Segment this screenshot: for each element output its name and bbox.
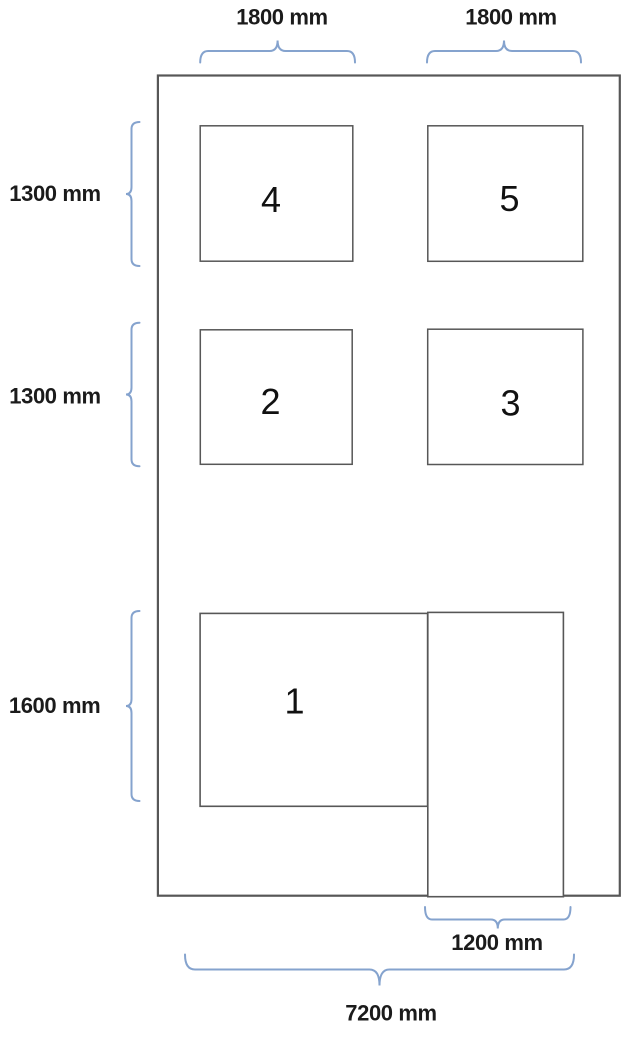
svg-text:1600 mm: 1600 mm xyxy=(9,693,100,718)
svg-text:4: 4 xyxy=(261,179,281,220)
svg-text:2: 2 xyxy=(260,381,280,422)
svg-text:1800 mm: 1800 mm xyxy=(465,5,556,30)
svg-text:1300 mm: 1300 mm xyxy=(9,181,100,206)
svg-text:1300 mm: 1300 mm xyxy=(9,384,100,409)
svg-text:5: 5 xyxy=(499,178,519,219)
svg-text:7200 mm: 7200 mm xyxy=(345,1001,436,1026)
svg-text:1800 mm: 1800 mm xyxy=(236,5,327,30)
svg-text:1: 1 xyxy=(284,680,304,721)
svg-text:3: 3 xyxy=(500,382,520,423)
svg-text:1200 mm: 1200 mm xyxy=(451,930,542,955)
